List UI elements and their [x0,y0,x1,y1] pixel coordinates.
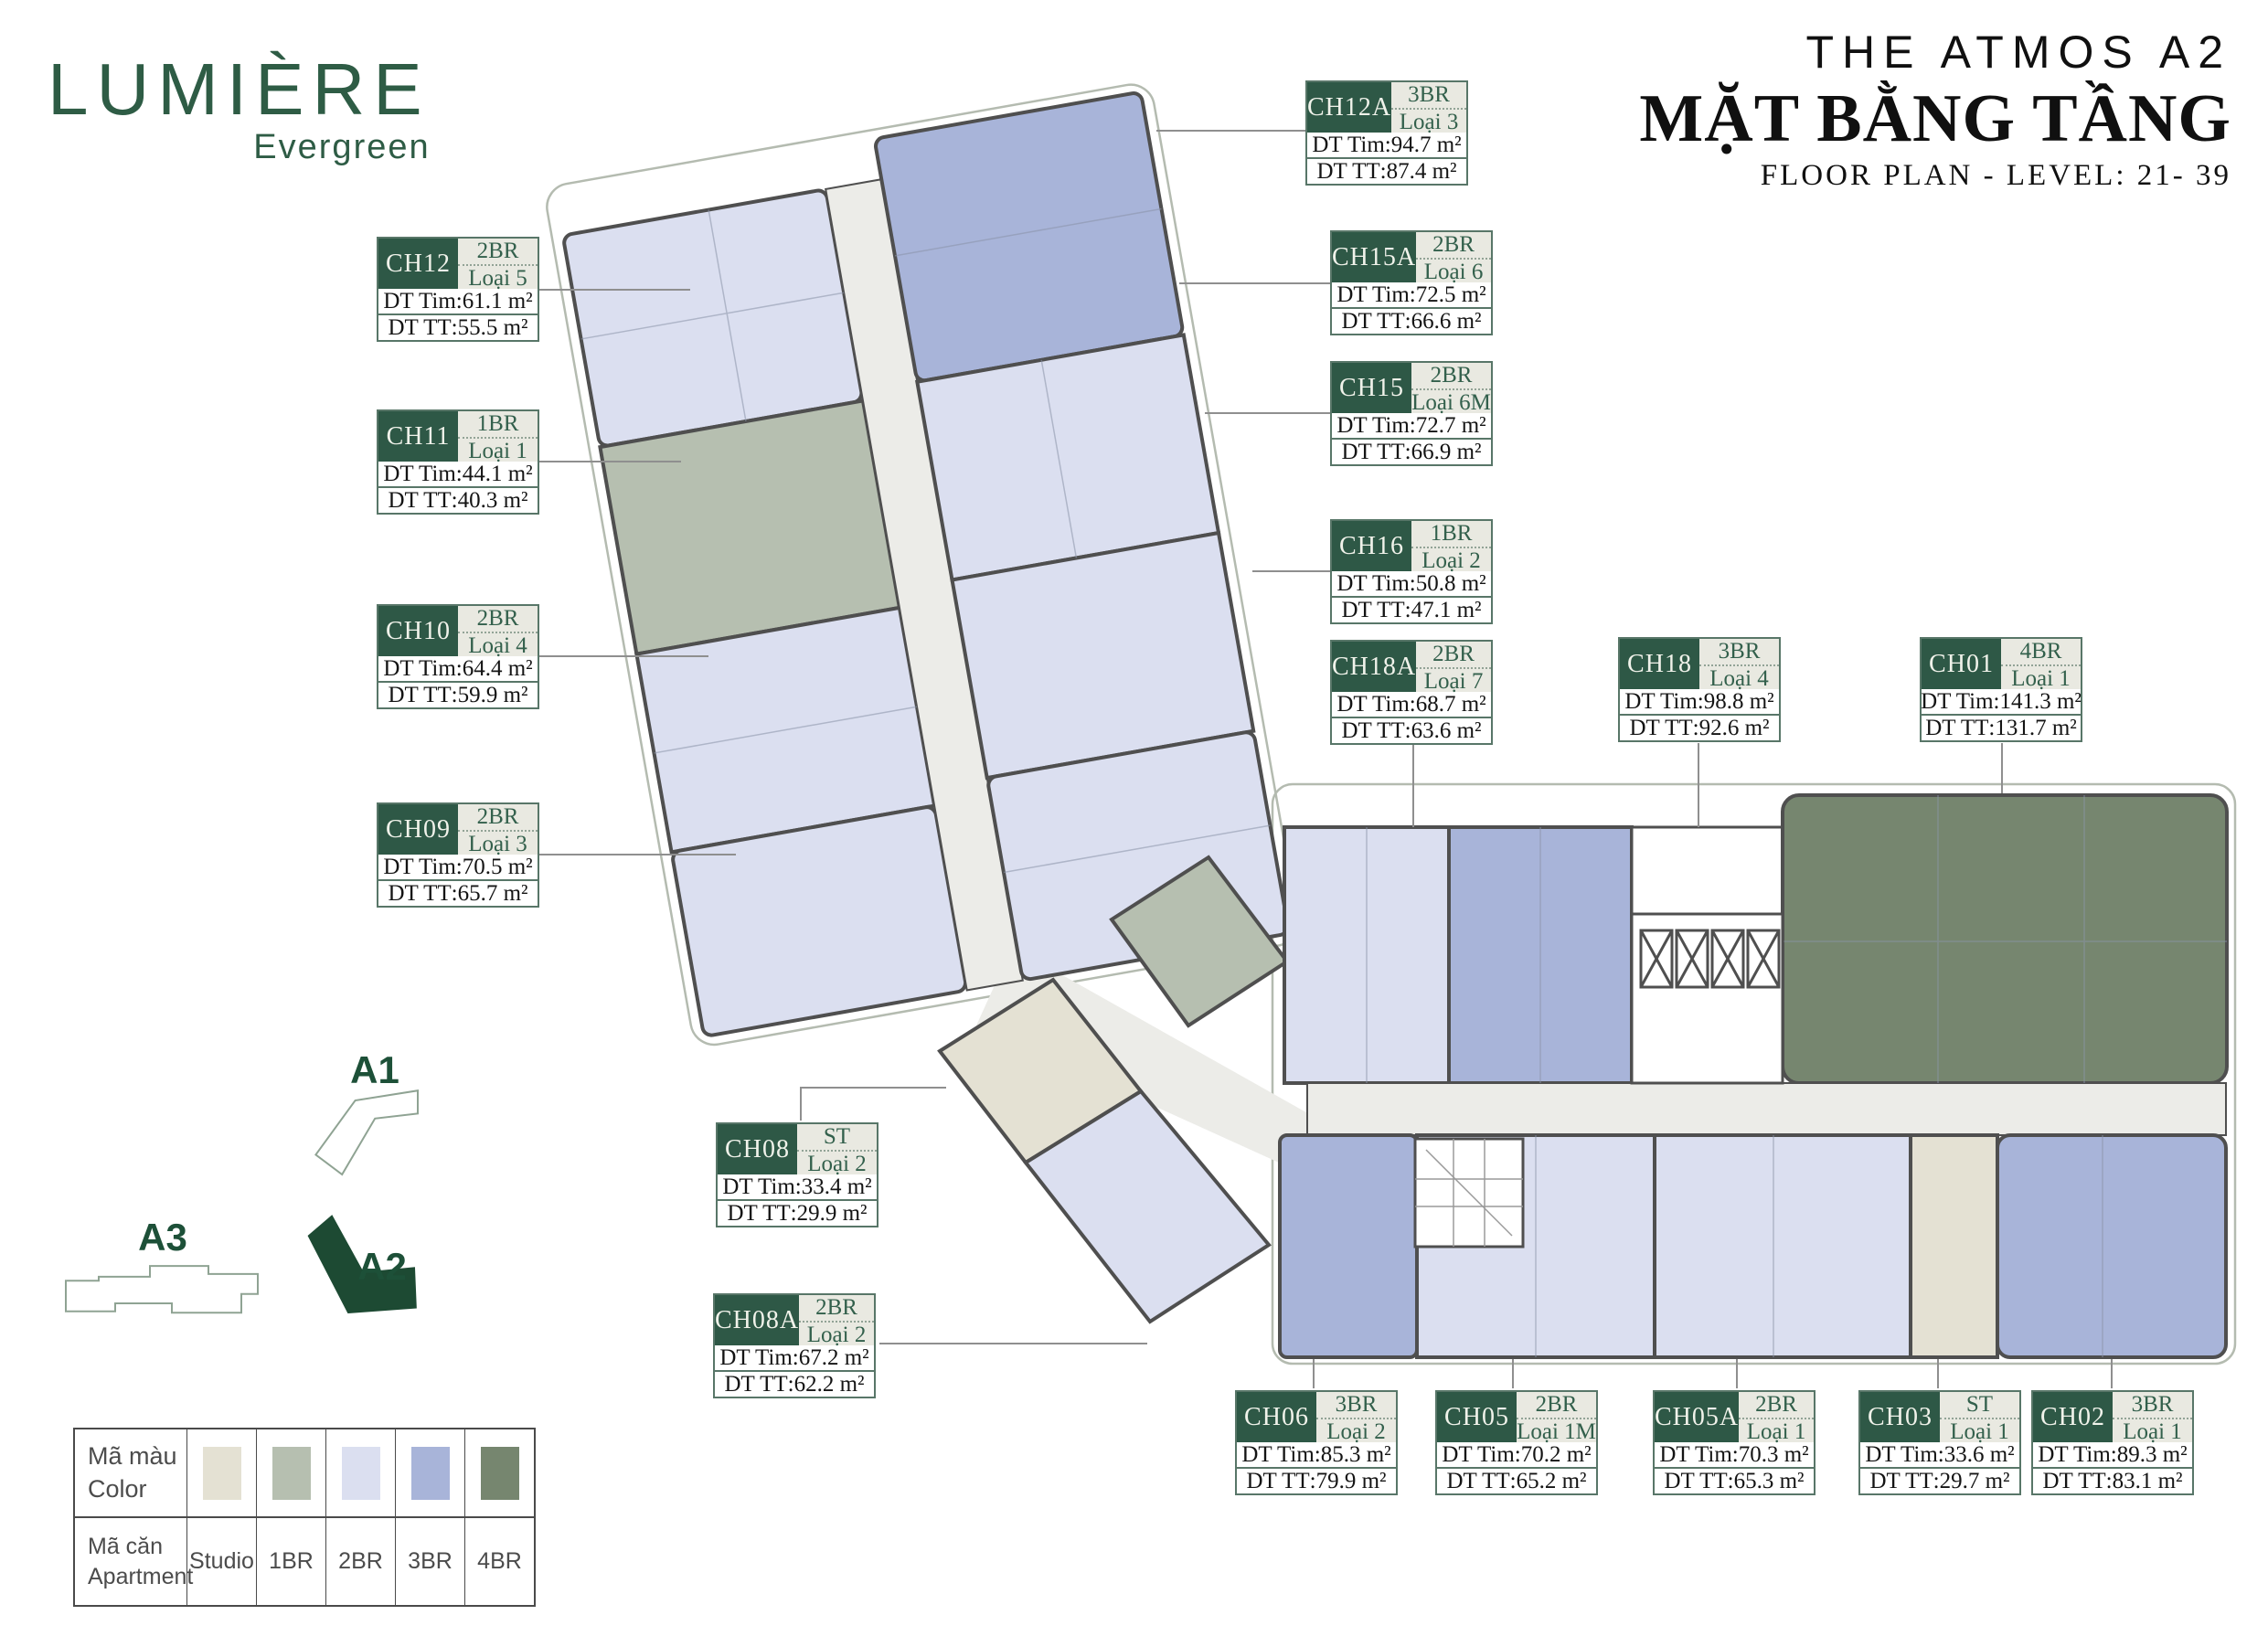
unit-bedroom-type: 2BR [1416,642,1491,669]
unit-dt-tim-row: DT Tim : 72.5 m² [1330,282,1493,309]
row-colon: : [1315,1442,1321,1468]
unit-dt-tim-row: DT Tim : 98.8 m² [1618,689,1781,716]
unit-dt-tim-row: DT Tim : 141.3 m² [1920,689,2082,716]
unit-ch06-area [1280,1135,1417,1357]
unit-card-ch08: CH08STLoại 2DT Tim : 33.4 m²DT TT : 29.9… [716,1122,878,1227]
row-label: DT Tim [383,462,455,487]
unit-dt-tim-row: DT Tim : 72.7 m² [1330,413,1493,440]
row-label: DT Tim [383,289,455,314]
unit-dt-tt-row: DT TT : 87.4 m² [1305,159,1468,186]
legend-table: Mã màu Color Mã căn Apartment Studio1BR2… [73,1428,536,1607]
unit-type-cell: 4BRLoại 1 [2001,639,2081,689]
unit-card-header: CH111BRLoại 1 [377,409,539,462]
row-value: 63.6 m² [1411,718,1482,744]
elevator-lobby [1632,827,1783,914]
row-value: 72.5 m² [1416,282,1486,308]
unit-code: CH05 [1437,1392,1517,1442]
row-label: DT TT [1629,716,1692,741]
legend-type-label-1br: 1BR [256,1518,325,1605]
row-label: DT Tim [1659,1442,1731,1468]
row-label: DT TT [727,1201,790,1227]
legend-swatch-cell-3br [395,1429,464,1516]
row-value: 67.2 m² [799,1345,869,1371]
unit-code: CH02 [2033,1392,2113,1442]
legend-color-label: Mã màu Color [75,1429,186,1516]
unit-code: CH11 [378,411,458,462]
row-label: DT TT [724,1372,787,1397]
row-colon: : [456,462,463,487]
row-colon: : [1994,689,2000,715]
unit-card-header: CH023BRLoại 1 [2031,1390,2194,1442]
unit-card-ch09: CH092BRLoại 3DT Tim : 70.5 m²DT TT : 65.… [377,802,539,908]
row-value: 87.4 m² [1387,159,1457,185]
unit-card-header: CH052BRLoại 1M [1435,1390,1598,1442]
row-value: 98.8 m² [1704,689,1774,715]
unit-type-cell: 2BRLoại 1M [1517,1392,1596,1442]
legend-swatch-4br [481,1447,519,1500]
row-label: DT TT [1341,309,1404,335]
unit-type-cell: 2BRLoại 4 [458,606,538,656]
row-label: DT Tim [1312,133,1384,158]
unit-code: CH08 [718,1124,797,1174]
unit-card-ch16: CH161BRLoại 2DT Tim : 50.8 m²DT TT : 47.… [1330,519,1493,624]
unit-dt-tim-row: DT Tim : 89.3 m² [2031,1442,2194,1469]
unit-code: CH16 [1332,521,1411,571]
unit-card-ch18: CH183BRLoại 4DT Tim : 98.8 m²DT TT : 92.… [1618,637,1781,742]
unit-dt-tim-row: DT Tim : 44.1 m² [377,462,539,488]
row-value: 70.5 m² [463,855,533,880]
unit-card-ch01: CH014BRLoại 1DT Tim : 141.3 m²DT TT : 13… [1920,637,2082,742]
site-label-a2: A2 [357,1245,407,1288]
row-colon: : [1933,1469,1940,1494]
row-value: 33.4 m² [802,1174,872,1200]
unit-code: CH03 [1860,1392,1940,1442]
unit-dt-tim-row: DT Tim : 33.4 m² [716,1174,878,1201]
row-label: DT Tim [722,1174,794,1200]
row-label: DT TT [1341,440,1404,465]
unit-type-cell: 3BRLoại 1 [2113,1392,2192,1442]
page-subtitle: FLOOR PLAN - LEVEL: 21- 39 [1639,159,2231,193]
unit-bedroom-type: 2BR [1517,1392,1596,1419]
unit-dt-tt-row: DT TT : 47.1 m² [1330,598,1493,624]
unit-dt-tim-row: DT Tim : 64.4 m² [377,656,539,683]
unit-card-header: CH122BRLoại 5 [377,237,539,289]
unit-dt-tim-row: DT Tim : 33.6 m² [1858,1442,2021,1469]
unit-dt-tt-row: DT TT : 65.3 m² [1653,1469,1815,1495]
row-value: 44.1 m² [463,462,533,487]
row-colon: : [1405,309,1411,335]
brand-tagline: Evergreen [48,128,431,167]
unit-dt-tim-row: DT Tim : 70.5 m² [377,855,539,881]
unit-card-header: CH08A2BRLoại 2 [713,1293,876,1345]
legend-color-row: Mã màu Color [75,1429,534,1516]
row-label: DT Tim [1336,692,1409,717]
row-label: DT Tim [383,656,455,682]
unit-bedroom-type: 4BR [2001,639,2081,666]
legend-type-label-4br: 4BR [464,1518,534,1605]
unit-type-cell: STLoại 2 [797,1124,877,1174]
title-block: THE ATMOS A2 MẶT BẰNG TẦNG FLOOR PLAN - … [1639,26,2231,193]
unit-code: CH12 [378,239,458,289]
row-value: 66.9 m² [1411,440,1482,465]
unit-type-cell: 2BRLoại 6 [1416,232,1491,282]
unit-dt-tt-row: DT TT : 79.9 m² [1235,1469,1398,1495]
unit-type-cell: 2BRLoại 7 [1416,642,1491,692]
row-label: DT TT [388,315,451,341]
row-colon: : [1405,718,1411,744]
row-colon: : [1405,440,1411,465]
unit-dt-tim-row: DT Tim : 50.8 m² [1330,571,1493,598]
row-value: 94.7 m² [1391,133,1462,158]
unit-code: CH06 [1237,1392,1316,1442]
unit-card-ch05: CH052BRLoại 1MDT Tim : 70.2 m²DT TT : 65… [1435,1390,1598,1495]
legend-swatch-1br [272,1447,311,1500]
unit-ch12a-area [874,91,1183,381]
unit-ch02-area [1997,1135,2226,1357]
row-colon: : [452,881,458,907]
row-colon: : [1410,692,1416,717]
unit-dt-tt-row: DT TT : 83.1 m² [2031,1469,2194,1495]
unit-code: CH10 [378,606,458,656]
floor-plan-page: A1 A2 A3 LUMIÈRE Evergreen THE ATMOS A2 … [0,0,2268,1647]
row-colon: : [452,315,458,341]
unit-code: CH15 [1332,363,1411,413]
unit-dt-tim-row: DT Tim : 85.3 m² [1235,1442,1398,1469]
row-value: 33.6 m² [1944,1442,2015,1468]
unit-code: CH08A [715,1295,799,1345]
row-value: 92.6 m² [1699,716,1770,741]
row-value: 70.2 m² [1521,1442,1592,1468]
unit-type-cell: STLoại 1 [1940,1392,2019,1442]
row-value: 72.7 m² [1416,413,1486,439]
site-building-a1-shape [315,1090,418,1174]
row-label: DT Tim [1442,1442,1514,1468]
row-value: 89.3 m² [2117,1442,2188,1468]
unit-ch03-area [1911,1135,1997,1357]
row-label: DT TT [1664,1469,1727,1494]
row-colon: : [1385,133,1391,158]
unit-card-header: CH152BRLoại 6M [1330,361,1493,413]
legend-apartment-label-vi: Mã căn [88,1532,186,1562]
row-value: 61.1 m² [463,289,533,314]
row-label: DT Tim [383,855,455,880]
row-value: 66.6 m² [1411,309,1482,335]
unit-dt-tt-row: DT TT : 59.9 m² [377,683,539,709]
unit-code: CH18 [1620,639,1699,689]
stair-core [1415,1139,1523,1247]
row-label: DT TT [1869,1469,1933,1494]
legend-apartment-label-en: Apartment [88,1562,186,1592]
unit-type-cell: 3BRLoại 4 [1699,639,1779,689]
row-value: 65.7 m² [458,881,528,907]
unit-dt-tt-row: DT TT : 62.2 m² [713,1372,876,1398]
site-building-a3-shape [66,1266,258,1312]
row-colon: : [452,488,458,514]
site-label-a1: A1 [350,1048,399,1091]
unit-bedroom-type: 3BR [1391,82,1466,110]
row-value: 50.8 m² [1416,571,1486,597]
unit-card-ch12: CH122BRLoại 5DT Tim : 61.1 m²DT TT : 55.… [377,237,539,342]
unit-card-ch08a: CH08A2BRLoại 2DT Tim : 67.2 m²DT TT : 62… [713,1293,876,1398]
site-label-a3: A3 [138,1216,187,1259]
row-value: 141.3 m² [1999,689,2081,715]
row-colon: : [1938,1442,1944,1468]
unit-card-header: CH05A2BRLoại 1 [1653,1390,1815,1442]
unit-card-ch11: CH111BRLoại 1DT Tim : 44.1 m²DT TT : 40.… [377,409,539,515]
row-value: 68.7 m² [1416,692,1486,717]
unit-dt-tt-row: DT TT : 63.6 m² [1330,718,1493,745]
unit-ch05a-area [1655,1135,1911,1357]
unit-bedroom-type: 2BR [1416,232,1491,260]
unit-bedroom-type: 2BR [1411,363,1491,390]
unit-bedroom-type: 2BR [458,239,538,266]
row-label: DT TT [388,488,451,514]
unit-card-header: CH15A2BRLoại 6 [1330,230,1493,282]
unit-code: CH05A [1655,1392,1739,1442]
unit-bedroom-type: 2BR [458,606,538,633]
row-value: 29.7 m² [1940,1469,2010,1494]
unit-card-header: CH08STLoại 2 [716,1122,878,1174]
unit-card-header: CH161BRLoại 2 [1330,519,1493,571]
row-value: 55.5 m² [458,315,528,341]
unit-code: CH15A [1332,232,1416,282]
row-label: DT Tim [1336,282,1409,308]
row-label: DT TT [1316,159,1379,185]
unit-card-header: CH063BRLoại 2 [1235,1390,1398,1442]
row-label: DT Tim [1624,689,1697,715]
brand-name: LUMIÈRE [48,53,431,126]
row-label: DT TT [1341,718,1404,744]
row-label: DT Tim [1865,1442,1937,1468]
unit-dt-tt-row: DT TT : 40.3 m² [377,488,539,515]
row-label: DT TT [2042,1469,2105,1494]
row-value: 47.1 m² [1411,598,1482,623]
row-colon: : [456,656,463,682]
unit-dt-tt-row: DT TT : 65.7 m² [377,881,539,908]
row-colon: : [1310,1469,1316,1494]
unit-bedroom-type: 1BR [1411,521,1491,548]
legend-swatch-cell-1br [256,1429,325,1516]
unit-dt-tim-row: DT Tim : 70.3 m² [1653,1442,1815,1469]
legend-swatch-cell-2br [325,1429,395,1516]
unit-dt-tt-row: DT TT : 66.6 m² [1330,309,1493,335]
unit-code: CH12A [1307,82,1391,133]
unit-ch01-area [1783,795,2227,1083]
unit-card-ch18a: CH18A2BRLoại 7DT Tim : 68.7 m²DT TT : 63… [1330,640,1493,745]
page-title: MẶT BẰNG TẦNG [1639,80,2231,158]
unit-card-ch15a: CH15A2BRLoại 6DT Tim : 72.5 m²DT TT : 66… [1330,230,1493,335]
unit-dt-tim-row: DT Tim : 67.2 m² [713,1345,876,1372]
row-colon: : [788,1372,794,1397]
unit-type-cell: 3BRLoại 2 [1316,1392,1396,1442]
unit-code: CH18A [1332,642,1416,692]
unit-dt-tt-row: DT TT : 66.9 m² [1330,440,1493,466]
unit-card-header: CH102BRLoại 4 [377,604,539,656]
unit-card-header: CH092BRLoại 3 [377,802,539,855]
row-value: 85.3 m² [1321,1442,1391,1468]
unit-card-header: CH014BRLoại 1 [1920,637,2082,689]
legend-color-label-vi: Mã màu [88,1440,186,1472]
row-value: 29.9 m² [797,1201,868,1227]
row-value: 70.3 m² [1739,1442,1809,1468]
row-colon: : [1405,598,1411,623]
legend-swatch-cell-4br [464,1429,534,1516]
unit-type-cell: 2BRLoại 3 [458,804,538,855]
row-colon: : [1510,1469,1517,1494]
row-value: 62.2 m² [794,1372,865,1397]
legend-swatch-cell-studio [186,1429,256,1516]
legend-swatch-studio [203,1447,241,1500]
unit-card-ch02: CH023BRLoại 1DT Tim : 89.3 m²DT TT : 83.… [2031,1390,2194,1495]
legend-swatch-3br [411,1447,450,1500]
unit-type-cell: 1BRLoại 2 [1411,521,1491,571]
legend-type-label-3br: 3BR [395,1518,464,1605]
unit-dt-tim-row: DT Tim : 70.2 m² [1435,1442,1598,1469]
unit-type-cell: 1BRLoại 1 [458,411,538,462]
row-colon: : [1728,1469,1734,1494]
row-colon: : [2106,1469,2113,1494]
unit-card-header: CH03STLoại 1 [1858,1390,2021,1442]
unit-code: CH09 [378,804,458,855]
unit-type-cell: 2BRLoại 1 [1739,1392,1814,1442]
legend-color-label-en: Color [88,1473,186,1505]
unit-dt-tt-row: DT TT : 92.6 m² [1618,716,1781,742]
unit-card-ch05a: CH05A2BRLoại 1DT Tim : 70.3 m²DT TT : 65… [1653,1390,1815,1495]
unit-bedroom-type: 2BR [1739,1392,1814,1419]
row-label: DT TT [1341,598,1404,623]
legend-apartment-row: Mã căn Apartment Studio1BR2BR3BR4BR [75,1516,534,1605]
row-label: DT Tim [719,1345,792,1371]
row-value: 59.9 m² [458,683,528,708]
row-label: DT TT [1246,1469,1309,1494]
row-colon: : [452,683,458,708]
row-value: 65.3 m² [1734,1469,1805,1494]
row-value: 64.4 m² [463,656,533,682]
row-colon: : [2111,1442,2117,1468]
row-colon: : [1988,716,1995,741]
unit-type-cell: 2BRLoại 5 [458,239,538,289]
unit-bedroom-type: 3BR [2113,1392,2192,1419]
unit-type-cell: 2BRLoại 2 [799,1295,874,1345]
site-plan: A1 A2 A3 [66,1048,418,1312]
unit-card-ch03: CH03STLoại 1DT Tim : 33.6 m²DT TT : 29.7… [1858,1390,2021,1495]
unit-bedroom-type: 3BR [1699,639,1779,666]
legend-apartment-label: Mã căn Apartment [75,1518,186,1605]
row-label: DT Tim [1336,571,1409,597]
unit-type-cell: 2BRLoại 6M [1411,363,1491,413]
row-label: DT TT [388,881,451,907]
legend-swatch-2br [342,1447,380,1500]
unit-bedroom-type: ST [1940,1392,2019,1419]
unit-dt-tt-row: DT TT : 65.2 m² [1435,1469,1598,1495]
unit-card-ch12a: CH12A3BRLoại 3DT Tim : 94.7 m²DT TT : 87… [1305,80,1468,186]
row-colon: : [795,1174,802,1200]
unit-card-header: CH12A3BRLoại 3 [1305,80,1468,133]
row-label: DT TT [388,683,451,708]
row-label: DT Tim [1336,413,1409,439]
row-value: 65.2 m² [1517,1469,1587,1494]
row-value: 131.7 m² [1995,716,2076,741]
unit-bedroom-type: 3BR [1316,1392,1396,1419]
row-colon: : [456,855,463,880]
brand-logo: LUMIÈRE Evergreen [48,53,431,167]
row-label: DT Tim [1921,689,1993,715]
unit-card-ch10: CH102BRLoại 4DT Tim : 64.4 m²DT TT : 59.… [377,604,539,709]
unit-dt-tt-row: DT TT : 55.5 m² [377,315,539,342]
row-colon: : [793,1345,799,1371]
unit-dt-tt-row: DT TT : 29.7 m² [1858,1469,2021,1495]
unit-dt-tt-row: DT TT : 29.9 m² [716,1201,878,1227]
unit-bedroom-type: ST [797,1124,877,1152]
unit-card-header: CH18A2BRLoại 7 [1330,640,1493,692]
unit-bedroom-type: 1BR [458,411,538,439]
row-colon: : [1693,716,1699,741]
row-label: DT TT [1446,1469,1509,1494]
row-colon: : [1410,413,1416,439]
project-name: THE ATMOS A2 [1639,26,2231,79]
unit-card-header: CH183BRLoại 4 [1618,637,1781,689]
row-colon: : [1515,1442,1521,1468]
row-value: 83.1 m² [2113,1469,2183,1494]
row-label: DT Tim [2038,1442,2110,1468]
unit-bedroom-type: 2BR [799,1295,874,1323]
row-colon: : [456,289,463,314]
row-colon: : [1410,571,1416,597]
row-value: 40.3 m² [458,488,528,514]
row-label: DT TT [1925,716,1988,741]
unit-type-cell: 3BRLoại 3 [1391,82,1466,133]
row-colon: : [1698,689,1704,715]
legend-type-label-2br: 2BR [325,1518,395,1605]
row-colon: : [1410,282,1416,308]
unit-dt-tim-row: DT Tim : 68.7 m² [1330,692,1493,718]
row-colon: : [1732,1442,1739,1468]
unit-card-ch15: CH152BRLoại 6MDT Tim : 72.7 m²DT TT : 66… [1330,361,1493,466]
unit-dt-tim-row: DT Tim : 61.1 m² [377,289,539,315]
row-value: 79.9 m² [1316,1469,1387,1494]
row-label: DT Tim [1241,1442,1314,1468]
unit-card-ch06: CH063BRLoại 2DT Tim : 85.3 m²DT TT : 79.… [1235,1390,1398,1495]
row-colon: : [791,1201,797,1227]
lower-corridor [1307,1083,2226,1135]
unit-dt-tim-row: DT Tim : 94.7 m² [1305,133,1468,159]
elevator-core [1632,914,1783,1083]
unit-code: CH01 [1922,639,2001,689]
row-colon: : [1380,159,1387,185]
legend-type-label-studio: Studio [186,1518,256,1605]
unit-bedroom-type: 2BR [458,804,538,832]
unit-dt-tt-row: DT TT : 131.7 m² [1920,716,2082,742]
